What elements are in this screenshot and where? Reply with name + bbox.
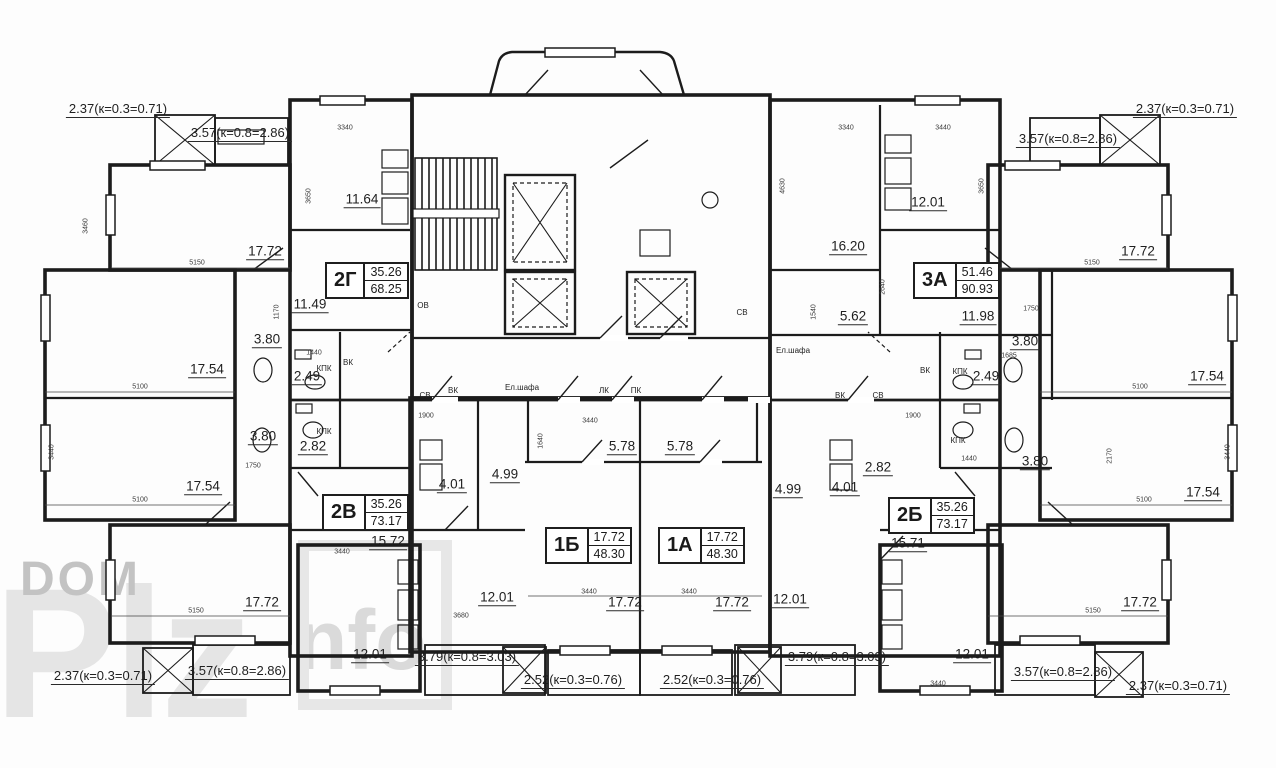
room-area-label: 16.20 [829, 239, 867, 255]
dimension-label: 3440 [681, 589, 697, 596]
room-area-label: 12.01 [351, 647, 389, 663]
room-area-label: 12.01 [953, 647, 991, 663]
room-area-label: 3.80 [1020, 454, 1050, 470]
balcony-coef-label: 2.37(к=0.3=0.71) [1133, 102, 1237, 118]
room-area-label: 17.72 [1119, 244, 1157, 260]
room-area-label: 5.78 [665, 439, 695, 455]
service-label: КПК [316, 428, 331, 436]
balcony-coef-label: 2.52(к=0.3=0.76) [521, 673, 625, 689]
dimension-label: 1540 [811, 304, 818, 320]
dimension-label: 3340 [337, 125, 353, 132]
dimension-label: 5150 [189, 260, 205, 267]
apartment-badge-2g: 2Г 35.2668.25 [325, 262, 409, 299]
room-area-label: 17.54 [184, 479, 222, 495]
service-label: КПК [316, 365, 331, 373]
room-area-label: 12.01 [771, 592, 809, 608]
apartment-badge-2b: 2Б 35.2673.17 [888, 497, 975, 534]
room-area-label: 17.72 [243, 595, 281, 611]
dimension-label: 3650 [979, 178, 986, 194]
floor-plan-canvas: Plz nfo DOM [0, 0, 1276, 768]
dimension-label: 1640 [538, 433, 545, 449]
dimension-label: 1900 [905, 413, 921, 420]
balcony-coef-label: 2.37(к=0.3=0.71) [1126, 679, 1230, 695]
dimension-label: 5100 [132, 497, 148, 504]
room-area-label: 11.49 [292, 297, 329, 313]
service-label: Ел.шафа [776, 347, 810, 355]
balcony-coef-label: 3.57(к=0.8=2.86) [188, 126, 292, 142]
room-area-label: 17.54 [1188, 369, 1226, 385]
dimension-label: 3460 [83, 218, 90, 234]
service-label: ВК [835, 392, 845, 400]
balcony-coef-label: 2.37(к=0.3=0.71) [66, 102, 170, 118]
apartment-badge-3a: 3А 51.4690.93 [913, 262, 1000, 299]
dimension-label: 3440 [930, 681, 946, 688]
dimension-label: 3440 [582, 418, 598, 425]
room-area-label: 2.82 [298, 439, 328, 455]
dimension-label: 2640 [880, 279, 887, 295]
dimension-label: 5150 [188, 608, 204, 615]
room-area-label: 4.99 [490, 467, 520, 483]
dimension-label: 3440 [334, 549, 350, 556]
dimension-label: 1440 [306, 350, 322, 357]
balcony-coef-label: 2.52(к=0.3=0.76) [660, 673, 764, 689]
room-area-label: 4.99 [773, 482, 803, 498]
room-area-label: 2.49 [971, 369, 1001, 385]
service-label: ПК [631, 387, 641, 395]
balcony-coef-label: 3.57(к=0.8=2.86) [185, 664, 289, 680]
service-label: ВК [343, 359, 353, 367]
room-area-label: 17.54 [1184, 485, 1222, 501]
room-area-label: 4.01 [830, 480, 860, 496]
service-label: ОВ [417, 302, 429, 310]
room-area-label: 15.71 [889, 536, 927, 552]
balcony-coef-label: 3.57(к=0.8=2.86) [1011, 665, 1115, 681]
room-area-label: 17.72 [606, 595, 644, 611]
balcony-coef-label: 3.79(к=0.8=3.03) [415, 650, 519, 666]
apartment-badge-1a: 1А 17.7248.30 [658, 527, 745, 564]
room-area-label: 15.72 [369, 534, 407, 550]
service-label: КПК [952, 368, 967, 376]
room-area-label: 17.72 [713, 595, 751, 611]
dimension-label: 5100 [1136, 497, 1152, 504]
balcony-coef-label: 3.57(к=0.8=2.86) [1016, 132, 1120, 148]
dimension-label: 3440 [1225, 444, 1232, 460]
dimension-label: 5150 [1084, 260, 1100, 267]
dimension-label: 1440 [961, 456, 977, 463]
room-area-label: 3.80 [252, 332, 282, 348]
room-area-label: 4.01 [437, 477, 467, 493]
dimension-label: 1750 [1023, 306, 1039, 313]
service-label: СВ [872, 392, 883, 400]
service-label: Ел.шафа [505, 384, 539, 392]
room-area-label: 11.98 [960, 309, 997, 325]
balcony-coef-label: 2.37(к=0.3=0.71) [51, 669, 155, 685]
room-area-label: 2.82 [863, 460, 893, 476]
dimension-label: 1170 [274, 304, 281, 319]
room-area-label: 5.78 [607, 439, 637, 455]
balcony-coef-label: 3.79(к=0.8=3.03) [785, 650, 889, 666]
room-area-label: 12.01 [478, 590, 516, 606]
room-area-label: 12.01 [909, 195, 947, 211]
service-label: ЛК [599, 387, 609, 395]
dimension-label: 5100 [1132, 384, 1148, 391]
apartment-badge-2v: 2В 35.2673.17 [322, 494, 409, 531]
dimension-label: 2170 [1107, 448, 1114, 464]
room-area-label: 17.72 [246, 244, 284, 260]
service-label: СВ [736, 309, 747, 317]
dimension-label: 5100 [132, 384, 148, 391]
dimension-label: 1900 [418, 413, 434, 420]
dimension-label: 3440 [935, 125, 951, 132]
room-area-label: 3.80 [1010, 334, 1040, 350]
room-area-label: 11.64 [344, 192, 381, 208]
service-label: СВ [419, 392, 430, 400]
service-label: КПК [950, 437, 965, 445]
service-label: ВК [448, 387, 458, 395]
dimension-label: 1685 [1001, 353, 1017, 360]
dimension-label: 3650 [306, 188, 313, 204]
dimension-label: 3440 [581, 589, 597, 596]
room-area-label: 17.54 [188, 362, 226, 378]
dimension-label: 1750 [245, 463, 261, 470]
dimension-label: 5150 [1085, 608, 1101, 615]
dimension-label: 3340 [838, 125, 854, 132]
service-label: ВК [920, 367, 930, 375]
dimension-label: 3440 [49, 444, 56, 460]
room-area-label: 5.62 [838, 309, 868, 325]
room-area-label: 17.72 [1121, 595, 1159, 611]
floor-plan-drawing [0, 0, 1276, 768]
dimension-label: 3680 [453, 613, 469, 620]
apartment-badge-1b: 1Б 17.7248.30 [545, 527, 632, 564]
dimension-label: 4630 [780, 178, 787, 194]
room-area-label: 3.80 [248, 429, 278, 445]
